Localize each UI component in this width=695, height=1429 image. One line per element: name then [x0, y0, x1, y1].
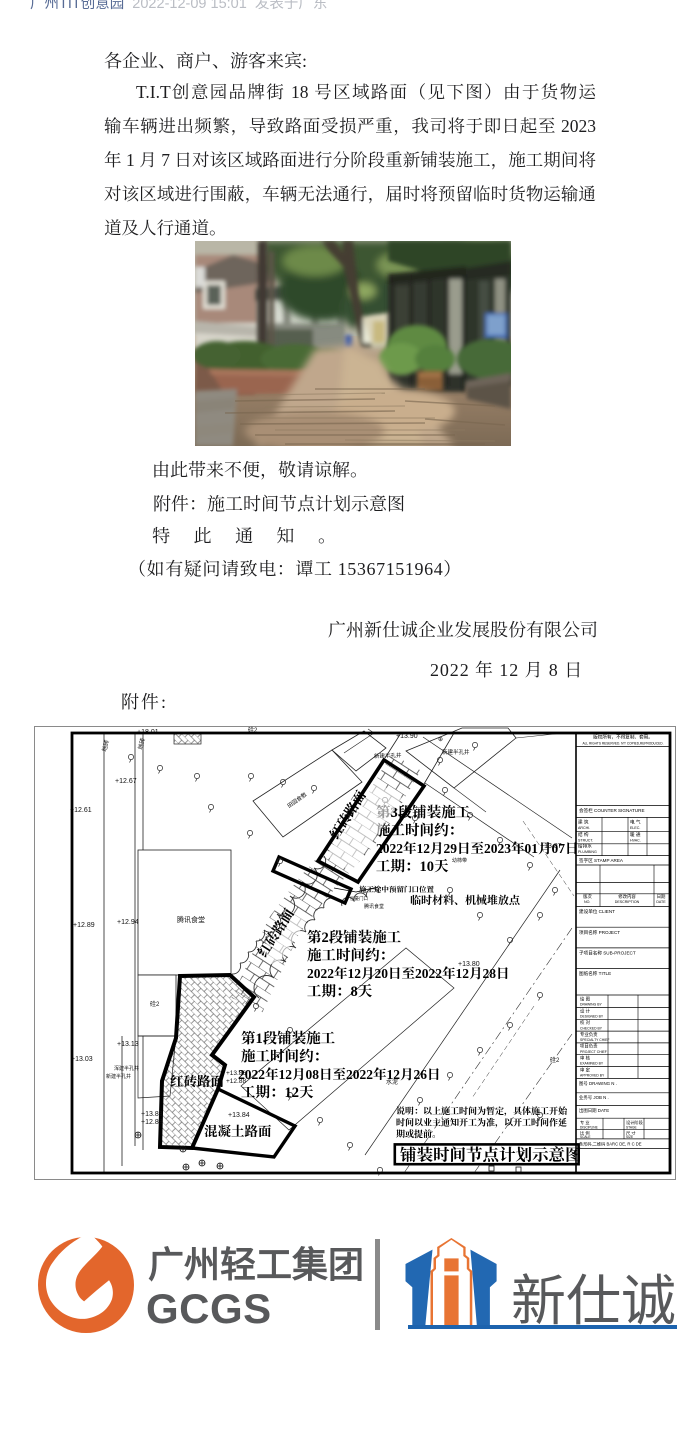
svg-text:SPECIALTY CHIEF: SPECIALTY CHIEF [580, 1038, 609, 1042]
svg-text:说明：以上施工时间为暂定，具体施工开始: 说明：以上施工时间为暂定，具体施工开始 [396, 1106, 567, 1116]
svg-text:DISCIPLINE: DISCIPLINE [580, 1126, 598, 1130]
svg-text:审 核: 审 核 [580, 1055, 591, 1062]
svg-text:施工时间约：: 施工时间约： [307, 947, 394, 964]
svg-text:第1段铺装施工: 第1段铺装施工 [241, 1030, 335, 1047]
svg-text:审 定: 审 定 [580, 1066, 591, 1073]
svg-text:腾讯食堂: 腾讯食堂 [364, 903, 384, 910]
svg-text:设 计: 设 计 [580, 1007, 591, 1014]
svg-text:暖 通: 暖 通 [630, 831, 641, 838]
svg-text:施工途中预留门口位置: 施工途中预留门口位置 [359, 885, 434, 894]
svg-text:临时材料、机械堆放点: 临时材料、机械堆放点 [410, 894, 520, 907]
svg-text:施工时间约：: 施工时间约： [241, 1048, 328, 1065]
svg-text:专业负责: 专业负责 [580, 1031, 598, 1038]
svg-text:新仕诚: 新仕诚 [511, 1270, 676, 1332]
svg-text:校 对: 校 对 [580, 1019, 591, 1026]
svg-text:+13.88: +13.88 [141, 1111, 163, 1118]
svg-text:建 筑: 建 筑 [578, 819, 589, 826]
svg-text:2022年12月08日至2022年12月26日: 2022年12月08日至2022年12月26日 [238, 1067, 441, 1082]
svg-text:浑建半孔井: 浑建半孔井 [114, 1065, 139, 1072]
svg-text:APPROVED BY: APPROVED BY [580, 1074, 605, 1078]
svg-text:工期：8天: 工期：8天 [307, 983, 373, 1000]
svg-text:+12.67: +12.67 [115, 778, 137, 785]
svg-text:子项目名称 SUB-PROJECT: 子项目名称 SUB-PROJECT [579, 950, 636, 957]
svg-text:SCALE: SCALE [580, 1135, 590, 1139]
svg-text:+12.94: +12.94 [117, 919, 139, 926]
svg-text:+13.03: +13.03 [71, 1056, 93, 1063]
svg-text:混凝土路面: 混凝土路面 [204, 1124, 272, 1139]
svg-text:SIZE: SIZE [626, 1135, 633, 1139]
svg-text:给排水: 给排水 [578, 843, 592, 850]
svg-text:广州轻工集团: 广州轻工集团 [148, 1244, 364, 1285]
svg-text:新建半孔井: 新建半孔井 [106, 1073, 131, 1080]
svg-text:工期：10天: 工期：10天 [376, 858, 449, 875]
svg-text:硂2: 硂2 [150, 1000, 160, 1008]
svg-text:电 气: 电 气 [630, 819, 641, 825]
svg-text:腾讯食堂: 腾讯食堂 [177, 915, 205, 924]
svg-text:恒憂门口: 恒憂门口 [350, 895, 368, 902]
svg-text:铺装时间节点计划示意图: 铺装时间节点计划示意图 [400, 1146, 582, 1165]
svg-text:NO.: NO. [584, 900, 590, 904]
svg-text:DESIGNED BY: DESIGNED BY [580, 1015, 604, 1019]
svg-text:+13.84: +13.84 [228, 1112, 250, 1119]
svg-text:新建半孔井: 新建半孔井 [442, 748, 470, 756]
svg-text:会签栏 COUNTER SIGNATURE: 会签栏 COUNTER SIGNATURE [579, 807, 645, 814]
svg-text:期或提前。: 期或提前。 [396, 1128, 441, 1139]
svg-text:时间以业主通知开工为准，以开工时间作延: 时间以业主通知开工为准，以开工时间作延 [396, 1117, 567, 1128]
svg-text:⊕: ⊕ [438, 737, 443, 743]
svg-text:DRAWING BY: DRAWING BY [580, 1003, 602, 1007]
svg-text:STRUCT.: STRUCT. [578, 838, 593, 842]
svg-text:EXAMINED BY: EXAMINED BY [580, 1062, 604, 1066]
svg-text:+12.89: +12.89 [73, 922, 95, 929]
svg-text:出图日期 DATE: 出图日期 DATE [579, 1107, 609, 1114]
svg-text:条形码,二维码 BARC DE, R C DE: 条形码,二维码 BARC DE, R C DE [579, 1141, 642, 1148]
svg-text:ARCHI.: ARCHI. [578, 826, 590, 830]
svg-text:项目负责: 项目负责 [580, 1043, 598, 1050]
svg-text:2022年12月20日至2022年12月28日: 2022年12月20日至2022年12月28日 [307, 966, 510, 981]
svg-text:业务号 JOB N .: 业务号 JOB N . [579, 1094, 609, 1101]
svg-text:CHECKED BY: CHECKED BY [580, 1026, 603, 1030]
svg-text:PLUMBING: PLUMBING [578, 850, 597, 854]
svg-text:施工时间约：: 施工时间约： [376, 822, 463, 839]
svg-text:图纸名称 TITLE: 图纸名称 TITLE [579, 970, 611, 977]
svg-text:第2段铺装施工: 第2段铺装施工 [307, 929, 401, 946]
svg-text:+13.13: +13.13 [117, 1041, 139, 1048]
svg-text:红砖路面: 红砖路面 [170, 1074, 224, 1089]
svg-text:ALL RIGHTS RESERVED. N'T COPIE: ALL RIGHTS RESERVED. N'T COPIED,REPRODUC… [583, 742, 664, 746]
svg-text:绘 图: 绘 图 [580, 996, 591, 1003]
svg-text:HVAC.: HVAC. [630, 838, 641, 842]
svg-text:版权所有，不得复制、套用。: 版权所有，不得复制、套用。 [593, 734, 653, 741]
svg-text:ELEC.: ELEC. [630, 826, 640, 830]
svg-text:建设单位 CLIENT: 建设单位 CLIENT [579, 908, 615, 915]
svg-text:项目名称 PROJECT: 项目名称 PROJECT [579, 929, 620, 936]
svg-text:STAGE: STAGE [626, 1126, 637, 1130]
svg-text:+12.88: +12.88 [141, 1119, 163, 1126]
svg-text:幼柿带: 幼柿带 [452, 857, 467, 864]
svg-text:2022年12月29日至2023年01月07日: 2022年12月29日至2023年01月07日 [376, 841, 579, 856]
svg-text:工期：12天: 工期：12天 [241, 1084, 314, 1101]
svg-text:结 构: 结 构 [578, 831, 589, 838]
svg-text:修改内容: 修改内容 [618, 893, 636, 900]
svg-text:DATE: DATE [656, 900, 666, 904]
svg-text:版次: 版次 [583, 893, 592, 900]
svg-text:GCGS: GCGS [146, 1285, 272, 1332]
svg-text:DESCRIPTION: DESCRIPTION [615, 900, 640, 904]
svg-text:签字区 STAMP AREA: 签字区 STAMP AREA [579, 857, 624, 863]
svg-text:硂2: 硂2 [550, 1056, 560, 1064]
svg-text:PROJECT CHIEF: PROJECT CHIEF [580, 1050, 607, 1054]
